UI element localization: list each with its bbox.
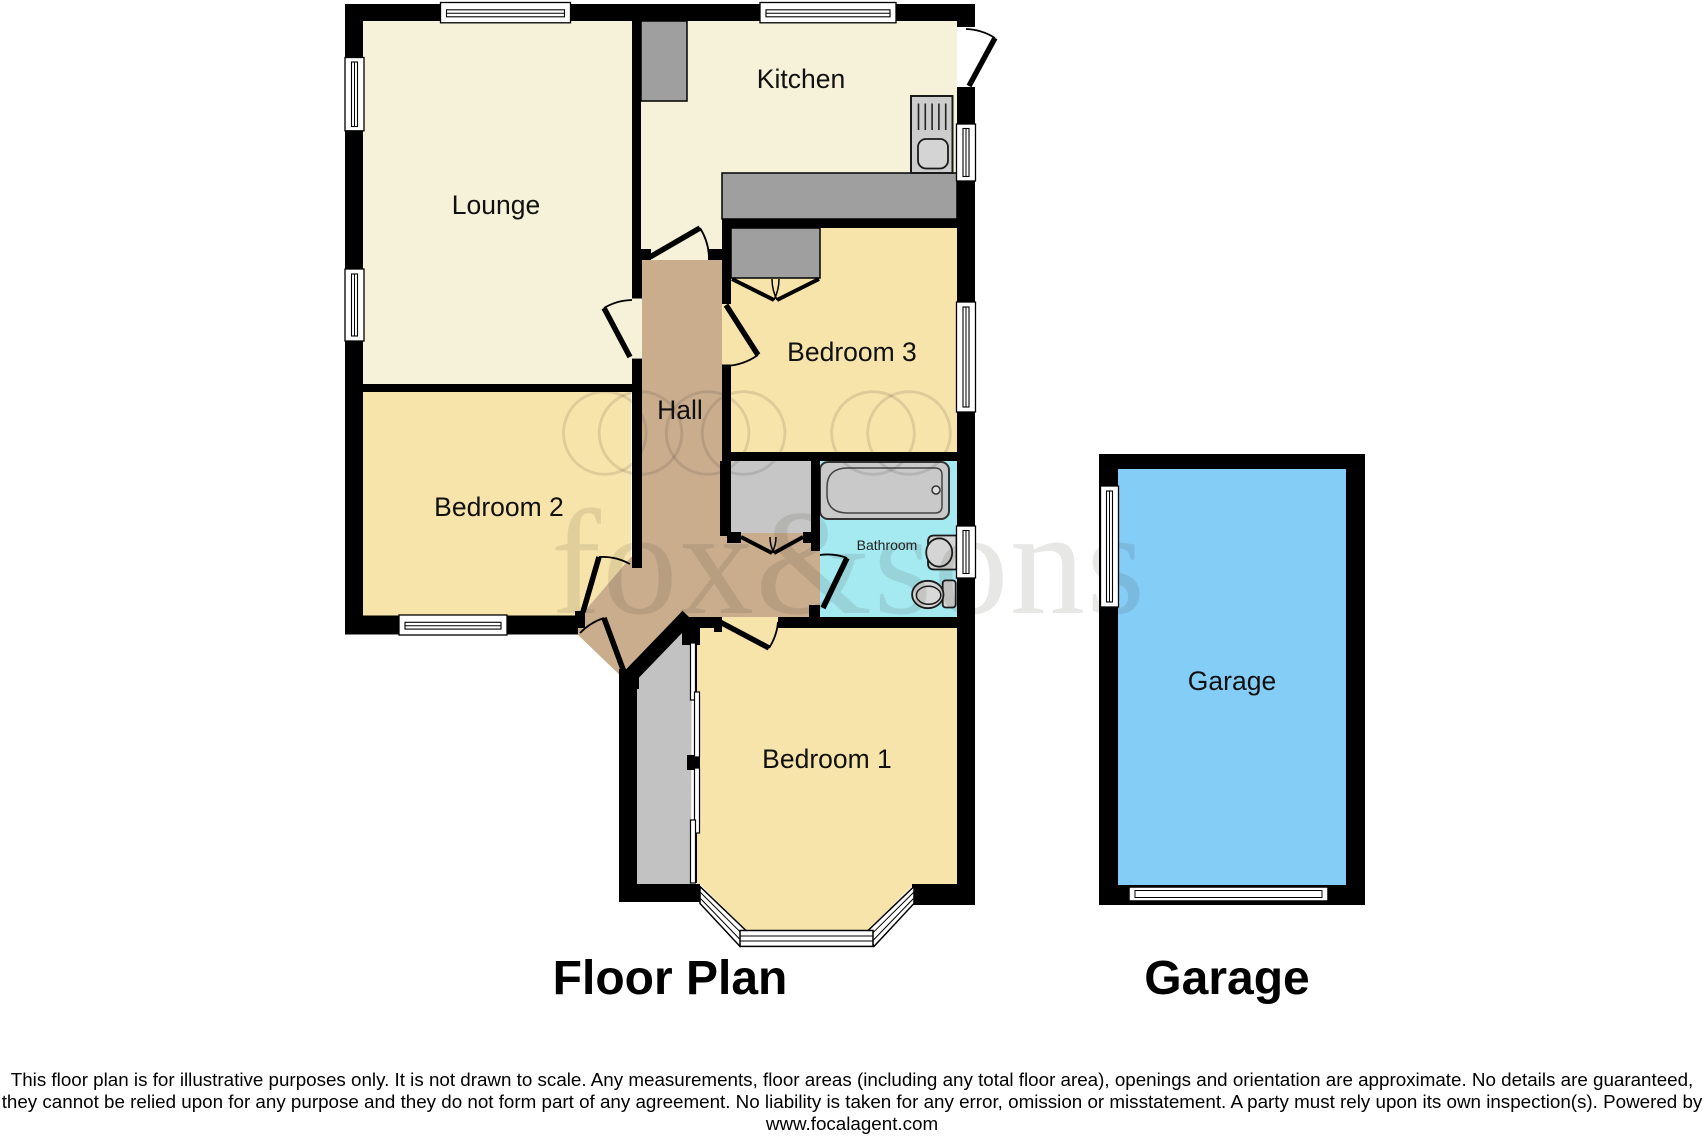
svg-text:This floor plan is for illustr: This floor plan is for illustrative purp… — [11, 1069, 1694, 1090]
svg-text:Bathroom: Bathroom — [857, 537, 918, 553]
svg-text:www.focalagent.com: www.focalagent.com — [765, 1113, 938, 1134]
svg-text:Lounge: Lounge — [452, 190, 540, 220]
svg-text:Bedroom 2: Bedroom 2 — [434, 492, 564, 522]
svg-text:Garage: Garage — [1188, 666, 1276, 696]
svg-text:they cannot be relied upon for: they cannot be relied upon for any purpo… — [2, 1091, 1703, 1112]
svg-text:Floor Plan: Floor Plan — [553, 952, 788, 1005]
svg-text:Bedroom 1: Bedroom 1 — [762, 744, 892, 774]
svg-text:Garage: Garage — [1144, 952, 1309, 1005]
svg-text:Bedroom 3: Bedroom 3 — [787, 337, 917, 367]
svg-text:Kitchen: Kitchen — [757, 64, 845, 94]
svg-text:Hall: Hall — [657, 395, 703, 425]
